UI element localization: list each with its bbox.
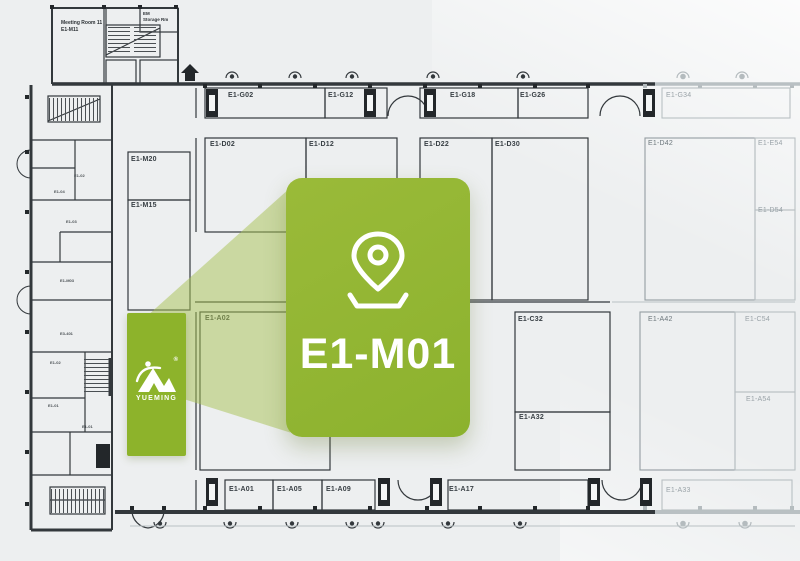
booth-label-e1-a32: E1-A32 bbox=[519, 414, 544, 421]
booth-label-e1-a05: E1-A05 bbox=[277, 486, 302, 493]
booth-label-e1-d12: E1-D12 bbox=[309, 141, 334, 148]
floor-plan-stage: Meeting Room 11 E1-M11 EM Storage Rm E1-… bbox=[0, 0, 800, 561]
exhibitor-logo-block: ® YUEMING bbox=[127, 313, 186, 456]
storage-room-line2: Storage Rm bbox=[143, 17, 168, 22]
wall-symbols-bottom-dots bbox=[158, 521, 522, 525]
highlight-card[interactable]: E1-M01 bbox=[286, 178, 470, 437]
booth-label-e1-d42: E1-D42 bbox=[648, 140, 673, 147]
booth-label-e1-d22: E1-D22 bbox=[424, 141, 449, 148]
booth-label-e1-m20: E1-M20 bbox=[131, 156, 157, 163]
stairs-hatch-wing-mid bbox=[84, 359, 109, 395]
booth-label-e1-m15: E1-M15 bbox=[131, 202, 157, 209]
brand-name: YUEMING bbox=[127, 395, 186, 402]
booth-label-e1-d30: E1-D30 bbox=[495, 141, 520, 148]
registered-mark: ® bbox=[174, 357, 178, 363]
booth-label-e1-c32: E1-C32 bbox=[518, 316, 543, 323]
booth-label-e1-d02: E1-D02 bbox=[210, 141, 235, 148]
booth-label-e1-a42: E1-A42 bbox=[648, 316, 673, 323]
booth-label-e1-g12: E1-G12 bbox=[328, 92, 353, 99]
stairs-hatch-wing-bottom bbox=[51, 489, 104, 513]
booth-label-e1-a54: E1-A54 bbox=[746, 396, 771, 403]
booth-label-e1-g34: E1-G34 bbox=[666, 92, 691, 99]
columns-faded bbox=[643, 84, 794, 510]
wing-room-label: E1-04 bbox=[54, 189, 65, 194]
booth-label-e1-a09: E1-A09 bbox=[326, 486, 351, 493]
booth-label-e1-a17: E1-A17 bbox=[449, 486, 474, 493]
wing-room-label: E3-401 bbox=[60, 331, 73, 336]
stairs-hatch-wing-top bbox=[49, 98, 99, 121]
wall-symbols-top-dots bbox=[230, 74, 525, 78]
highlight-booth-id: E1-M01 bbox=[300, 330, 457, 379]
booth-label-e1-a01: E1-A01 bbox=[229, 486, 254, 493]
meeting-room-name: Meeting Room 11 bbox=[61, 20, 102, 26]
location-pin-icon bbox=[344, 230, 412, 312]
booth-label-e1-g02: E1-G02 bbox=[228, 92, 253, 99]
yueming-logo-icon bbox=[127, 353, 186, 433]
wall-symbols-bottom bbox=[154, 522, 526, 528]
stairwell-hatch-complex-a bbox=[108, 27, 130, 55]
stairwell-hatch-complex-b bbox=[134, 27, 156, 55]
storage-room-line1: EM bbox=[143, 11, 150, 16]
wing-room-label: E1-01 bbox=[48, 403, 59, 408]
wall-symbols-top bbox=[226, 72, 529, 78]
wing-room-label: E1-02 bbox=[74, 173, 85, 178]
entrance-arrow-icon bbox=[181, 64, 199, 81]
booth-label-e1-c54: E1-C54 bbox=[745, 316, 770, 323]
plan-walls-medium bbox=[640, 138, 755, 470]
wing-room-label: E1-03 bbox=[66, 219, 77, 224]
wing-room-label: E1-M03 bbox=[60, 278, 74, 283]
booth-label-e1-a33: E1-A33 bbox=[666, 487, 691, 494]
booth-label-e1-g26: E1-G26 bbox=[520, 92, 545, 99]
meeting-room-id: E1-M11 bbox=[61, 27, 78, 33]
booth-label-e1-d54: E1-D54 bbox=[758, 207, 783, 214]
wing-room-label: E1-01 bbox=[82, 424, 93, 429]
wing-room-label: E1-02 bbox=[50, 360, 61, 365]
booth-label-e1-e54: E1-E54 bbox=[758, 140, 783, 147]
booth-label-e1-g18: E1-G18 bbox=[450, 92, 475, 99]
